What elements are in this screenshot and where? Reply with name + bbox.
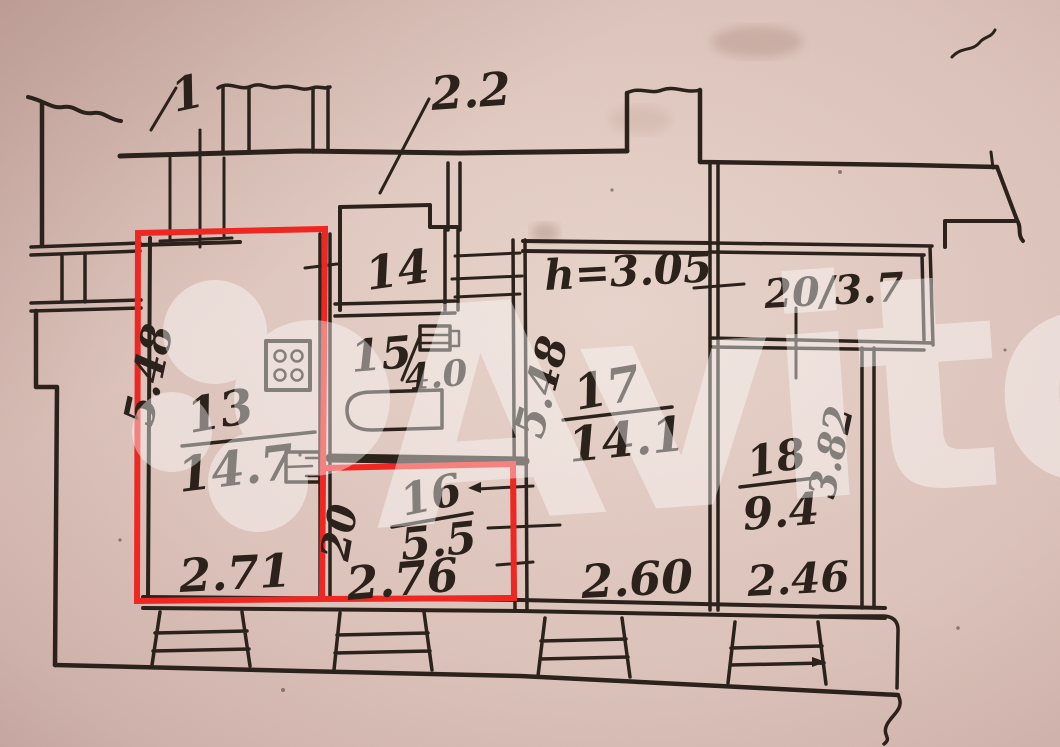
room16-depth-label: 20 (311, 501, 367, 565)
floor-plan-svg: 1 2.2 h=3.05 14 15 4.0 13 14.7 5.48 2.71… (0, 0, 1060, 747)
wall-thickness-label: 2.2 (428, 62, 513, 122)
room13-width-label: 2.71 (177, 543, 293, 603)
wall-tick (991, 152, 993, 168)
floor-plan-photo: 1 2.2 h=3.05 14 15 4.0 13 14.7 5.48 2.71… (0, 0, 1060, 747)
avito-watermark-text: Avito (357, 193, 1060, 598)
